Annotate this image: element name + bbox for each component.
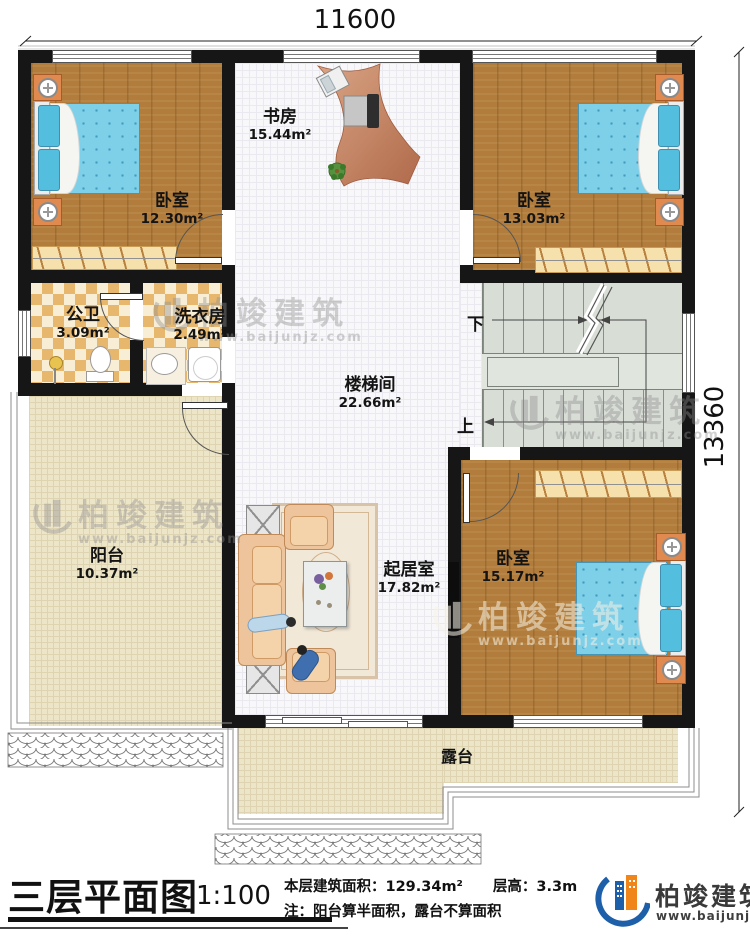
- room-name: 书房: [238, 108, 322, 128]
- pillow: [660, 564, 682, 607]
- washer-drum: [193, 356, 218, 380]
- plan-info: 本层建筑面积：129.34m²层高：3.3m 注：阳台算半面积，露台不算面积: [284, 875, 577, 925]
- room-label-balcony: 阳台 10.37m²: [63, 547, 151, 582]
- room-name: 卧室: [128, 192, 216, 212]
- sofa-cushion: [252, 546, 282, 584]
- flower-decor: [319, 583, 326, 590]
- room-label-bedroom-tl: 卧室 12.30m²: [128, 192, 216, 227]
- wardrobe: [535, 247, 682, 273]
- room-area: 15.17m²: [468, 570, 558, 586]
- room-label-stairwell: 楼梯间 22.66m²: [320, 376, 420, 411]
- window: [283, 50, 420, 63]
- lamp-icon: [662, 537, 682, 557]
- sliding-door-panel: [348, 721, 408, 728]
- room-name: 露台: [412, 748, 502, 766]
- terrace-floor-left: [238, 728, 444, 814]
- plan-title: 三层平面图: [8, 867, 198, 921]
- stair-flight-down: [482, 390, 683, 447]
- wall: [643, 715, 695, 728]
- window: [18, 310, 31, 357]
- pillow: [658, 149, 680, 191]
- wall: [222, 50, 235, 210]
- pillow: [660, 609, 682, 652]
- door-leaf: [473, 257, 520, 264]
- stair-landing: [482, 353, 682, 390]
- sofa-cushion: [252, 621, 282, 659]
- room-name: 公卫: [41, 306, 125, 326]
- table-decor: [327, 603, 332, 608]
- wall: [228, 383, 235, 396]
- wall: [448, 447, 470, 460]
- window: [682, 313, 695, 393]
- room-area: 3.09m²: [41, 326, 125, 342]
- lamp-icon: [662, 660, 682, 680]
- right-dimension-label: 13360: [700, 372, 730, 482]
- floor-drain-icon: [49, 356, 63, 370]
- stair-up-label: 上: [457, 412, 474, 437]
- toilet: [90, 346, 111, 373]
- window: [52, 50, 192, 63]
- wardrobe: [32, 246, 177, 270]
- armchair-cushion: [290, 516, 328, 546]
- room-area: 22.66m²: [320, 396, 420, 412]
- room-label-laundry: 洗衣房 2.49m²: [158, 308, 242, 343]
- armchair-cushion: [292, 652, 330, 682]
- window: [513, 715, 643, 728]
- plan-scale: 1:100: [196, 881, 271, 911]
- room-name: 楼梯间: [320, 376, 420, 396]
- door-leaf: [100, 293, 143, 300]
- room-label-bedroom-tr: 卧室 13.03m²: [490, 192, 578, 227]
- drain-stem: [54, 368, 56, 384]
- plan-note: 注：阳台算半面积，露台不算面积: [284, 900, 577, 925]
- company-name: 柏竣建筑: [655, 877, 750, 913]
- wall: [423, 715, 513, 728]
- window: [472, 50, 657, 63]
- wall: [460, 50, 473, 210]
- pillow: [38, 149, 60, 191]
- door-leaf: [175, 257, 222, 264]
- wall: [18, 270, 235, 283]
- top-dimension-label: 11600: [290, 5, 420, 35]
- wall: [130, 340, 143, 383]
- room-area: 12.30m²: [128, 212, 216, 228]
- pillow: [658, 105, 680, 147]
- room-area: 15.44m²: [238, 128, 322, 144]
- room-label-study: 书房 15.44m²: [238, 108, 322, 143]
- room-area: 2.49m²: [158, 328, 242, 344]
- title-block: 三层平面图 1:100 本层建筑面积：129.34m²层高：3.3m 注：阳台算…: [0, 865, 750, 940]
- room-name: 阳台: [63, 547, 151, 567]
- coffee-table: [303, 561, 347, 627]
- floor-height-text: 层高：3.3m: [493, 879, 577, 895]
- stair-down-label: 下: [467, 310, 484, 335]
- company-logo-icon: [594, 869, 650, 929]
- title-underline-thin: [0, 927, 348, 929]
- flower-decor: [325, 572, 333, 580]
- sink: [151, 353, 178, 375]
- room-area: 13.03m²: [490, 212, 578, 228]
- floor-plan: 11600 13360 下 上: [0, 0, 750, 940]
- room-name: 卧室: [468, 550, 558, 570]
- wall: [520, 447, 695, 460]
- company-url: www.baijunjz.com: [656, 909, 750, 923]
- lamp-icon: [38, 202, 58, 222]
- room-name: 洗衣房: [158, 308, 242, 328]
- lamp-icon: [660, 78, 680, 98]
- room-label-bathroom: 公卫 3.09m²: [41, 306, 125, 341]
- room-name: 卧室: [490, 192, 578, 212]
- room-label-bedroom-br: 卧室 15.17m²: [468, 550, 558, 585]
- pillow: [38, 105, 60, 147]
- door-leaf: [182, 402, 228, 409]
- room-area: 17.82m²: [364, 581, 454, 597]
- sliding-door-panel: [282, 717, 342, 724]
- lamp-icon: [38, 78, 58, 98]
- door-leaf: [463, 473, 470, 523]
- floor-area-text: 本层建筑面积：129.34m²: [284, 879, 463, 895]
- wall: [192, 50, 283, 63]
- lamp-icon: [660, 202, 680, 222]
- room-area: 10.37m²: [63, 567, 151, 583]
- room-label-terrace: 露台: [412, 748, 502, 766]
- room-name: 起居室: [364, 561, 454, 581]
- room-label-living: 起居室 17.82m²: [364, 561, 454, 596]
- stair-flight-up: [482, 283, 683, 353]
- table-decor: [316, 600, 321, 605]
- wall: [222, 715, 265, 728]
- sofa-cushion: [252, 584, 282, 622]
- closet: [535, 470, 682, 498]
